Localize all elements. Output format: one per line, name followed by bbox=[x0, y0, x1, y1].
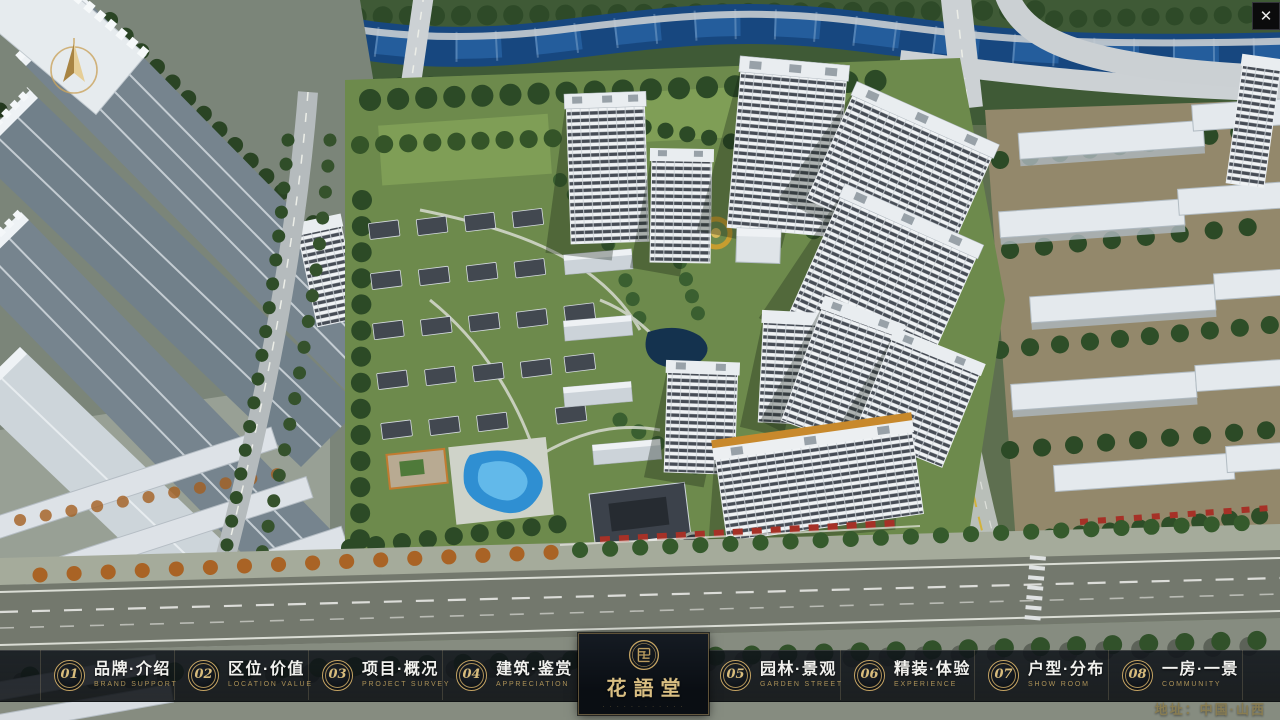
nav-item-brand-intro[interactable]: 01 品牌·介绍 BRAND SUPPORT bbox=[40, 650, 175, 700]
nav-item-subtitle: SHOW ROOM bbox=[1028, 681, 1105, 688]
project-address: 地址：中国·山西 bbox=[1155, 699, 1266, 718]
nav-item-number-badge: 06 bbox=[854, 660, 885, 691]
sales-presentation-screen: ✕ 01 品牌·介绍 BRAND SUPPORT 02 区位·价值 LOCATI… bbox=[0, 0, 1280, 720]
nav-item-number-badge: 07 bbox=[988, 660, 1019, 691]
close-button[interactable]: ✕ bbox=[1252, 2, 1280, 30]
nav-item-number-badge: 04 bbox=[456, 660, 487, 691]
project-logo-title: 花語堂 bbox=[600, 672, 688, 701]
nav-item-label: 品牌·介绍 bbox=[94, 662, 178, 678]
nav-item-landscape[interactable]: 05 园林·景观 GARDEN STREET bbox=[707, 650, 841, 700]
nav-item-label: 园林·景观 bbox=[760, 662, 843, 678]
nav-item-number-badge: 01 bbox=[54, 660, 85, 691]
nav-item-subtitle: GARDEN STREET bbox=[760, 681, 843, 688]
nav-item-label: 区位·价值 bbox=[228, 662, 313, 678]
nav-item-number-badge: 02 bbox=[188, 660, 219, 691]
project-logo-panel[interactable]: 花語堂 · · · · · · · · · · · · bbox=[578, 633, 709, 715]
nav-item-subtitle: LOCATION VALUE bbox=[228, 681, 313, 688]
seal-emblem-icon bbox=[628, 639, 660, 671]
community-site bbox=[345, 53, 1005, 563]
nav-item-subtitle: PROJECT SURVEY bbox=[362, 681, 450, 688]
nav-item-number-badge: 08 bbox=[1122, 660, 1153, 691]
nav-item-number-badge: 03 bbox=[322, 660, 353, 691]
compass-north-icon bbox=[44, 36, 104, 100]
project-logo-tagline: · · · · · · · · · · · · bbox=[603, 704, 684, 710]
close-icon: ✕ bbox=[1260, 9, 1273, 24]
nav-item-subtitle: APPRECIATION bbox=[496, 681, 573, 688]
nav-item-location-value[interactable]: 02 区位·价值 LOCATION VALUE bbox=[175, 650, 309, 700]
masterplan-render bbox=[0, 0, 1280, 720]
nav-item-architecture[interactable]: 04 建筑·鉴赏 APPRECIATION bbox=[443, 650, 578, 700]
nav-item-room-view[interactable]: 08 一房·一景 COMMUNITY bbox=[1109, 650, 1243, 700]
nav-item-label: 建筑·鉴赏 bbox=[496, 662, 573, 678]
nav-item-number-badge: 05 bbox=[720, 660, 751, 691]
nav-item-label: 户型·分布 bbox=[1028, 662, 1105, 678]
nav-item-floorplan[interactable]: 07 户型·分布 SHOW ROOM bbox=[975, 650, 1109, 700]
nav-item-label: 项目·概况 bbox=[362, 662, 450, 678]
nav-item-project-overview[interactable]: 03 项目·概况 PROJECT SURVEY bbox=[309, 650, 443, 700]
nav-item-subtitle: COMMUNITY bbox=[1162, 681, 1239, 688]
nav-item-label: 一房·一景 bbox=[1162, 662, 1239, 678]
nav-item-subtitle: BRAND SUPPORT bbox=[94, 681, 178, 688]
nav-item-label: 精装·体验 bbox=[894, 662, 971, 678]
nav-item-subtitle: EXPERIENCE bbox=[894, 681, 971, 688]
swimming-pool bbox=[448, 437, 554, 525]
nav-item-decoration-experience[interactable]: 06 精装·体验 EXPERIENCE bbox=[841, 650, 975, 700]
